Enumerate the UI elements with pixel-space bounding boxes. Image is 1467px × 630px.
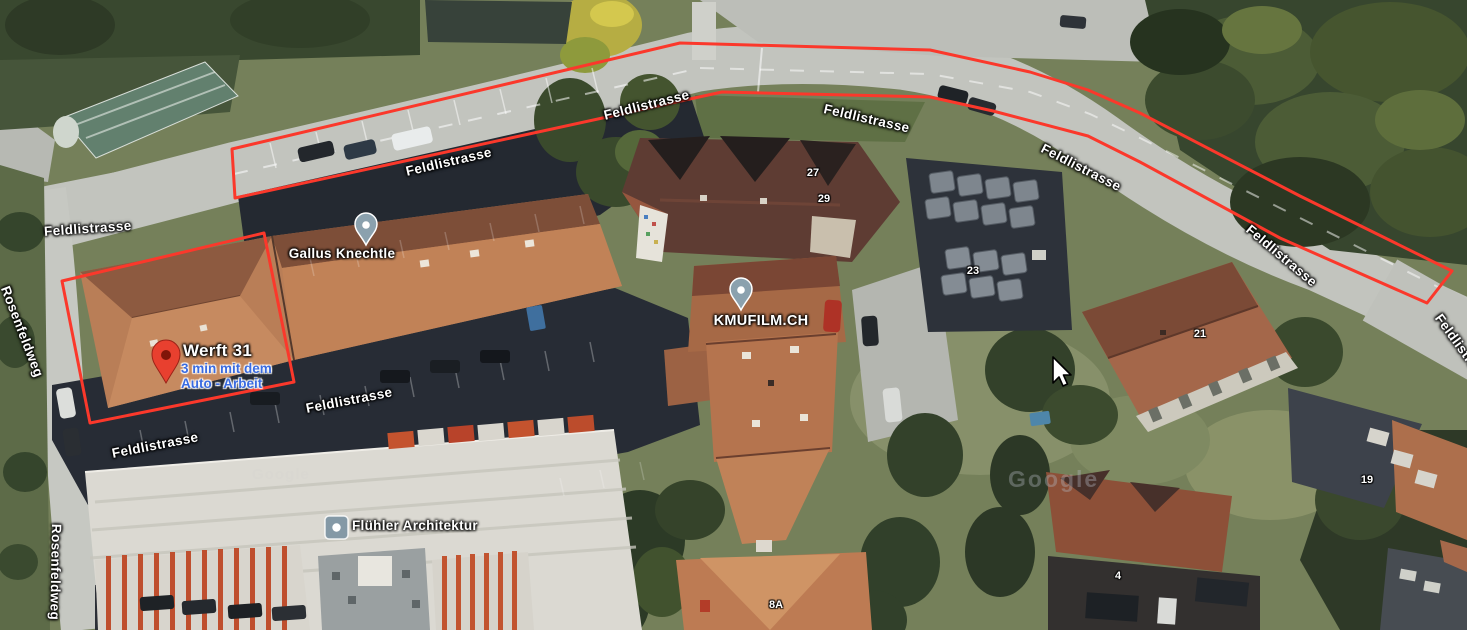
satellite-map-canvas[interactable]: Feldlistrasse Feldlistrasse Feldlistrass… (0, 0, 1467, 630)
garages-building-23 (906, 158, 1072, 332)
pool (1029, 411, 1051, 427)
aerial-imagery (0, 0, 1467, 630)
business-square-icon-fluehler[interactable] (325, 516, 348, 539)
dark-roof-building-top (425, 0, 572, 44)
building-27-29 (622, 136, 900, 262)
